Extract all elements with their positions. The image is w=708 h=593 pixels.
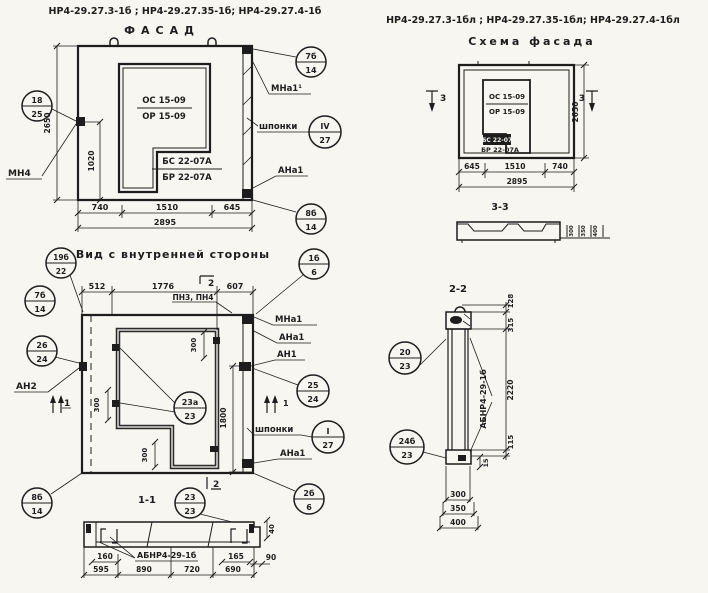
lifting-loops (110, 38, 216, 46)
section-2-2-title: 2-2 (449, 284, 467, 295)
facade-dim-sill: 1020 (87, 151, 96, 172)
inner-callout-25-24: 25 24 (297, 375, 329, 407)
callout-bot: 14 (305, 66, 317, 75)
facade-label-shponki: шпонки (259, 122, 297, 132)
scheme-block-mark-bot: БР 22-07А (481, 146, 519, 154)
scheme-block-mark-top: БС 22-07 (482, 137, 512, 144)
callout-top: 25 (307, 381, 319, 390)
callout-top: 26 (36, 341, 48, 350)
drawing-sheet: НР4-29.27.3-1б ; НР4-29.27.35-1б; НР4-29… (0, 0, 708, 593)
callout-bot: 14 (31, 507, 43, 516)
s11-dim-595: 595 (93, 565, 109, 574)
callout-bot: 14 (305, 223, 317, 232)
s11-callout-23-23: 23 23 (175, 488, 232, 522)
callout-top: 24б (399, 436, 416, 446)
facade-callout-7b-14: 7б 14 (296, 47, 326, 77)
inner-dim-300-c: 300 (190, 338, 198, 353)
callout-top: IV (320, 122, 330, 131)
facade-dim-645: 645 (224, 203, 241, 212)
callout-top: 19б (53, 253, 69, 262)
scheme-view: ОС 15-09 ОР 15-09 БС 22-07 БР 22-07А 3 3… (426, 61, 610, 243)
inner-mark1-right: 1 (283, 399, 289, 408)
inner-callout-2b-6: 2б 6 (294, 484, 324, 514)
callout-top: 7б (305, 51, 317, 61)
scheme-window-mark-top: ОС 15-09 (489, 93, 525, 101)
callout-top: 23 (184, 493, 195, 502)
title-facade: ФАСАД (124, 24, 200, 37)
s22-dim-350: 350 (450, 504, 466, 513)
titles: НР4-29.27.3-1б ; НР4-29.27.35-1б; НР4-29… (49, 6, 680, 48)
section-2-2: 2-2 АБНР4-29-1б 20 23 24б 23 128 315 222… (389, 284, 515, 531)
callout-bot: 25 (31, 110, 43, 119)
callout-top: I (327, 427, 330, 436)
s22-dim-115: 115 (507, 435, 515, 450)
section-1-1: 1-1 23 23 АБНР4-29-1б 160 165 90 40 595 … (81, 488, 276, 578)
inner-label-pn: ПН3, ПН4 (172, 293, 213, 302)
drawing-canvas: НР4-29.27.3-1б ; НР4-29.27.35-1б; НР4-29… (0, 0, 708, 593)
inner-dim-1800: 1800 (219, 408, 228, 429)
scheme-dim-645: 645 (464, 162, 480, 171)
facade-label-mna1: МНа1¹ (271, 84, 302, 94)
facade-dim-1510: 1510 (156, 203, 179, 212)
callout-bot: 23 (401, 451, 412, 460)
scheme-dim-height: 2650 (571, 102, 580, 123)
callout-bot: 24 (307, 395, 319, 404)
facade-window-mark-bot: ОР 15-09 (142, 112, 186, 122)
s22-dim-128: 128 (507, 294, 515, 309)
facade-callout-18-25: 18 25 (22, 91, 52, 121)
s22-callout-24b-23: 24б 23 (390, 430, 446, 464)
inner-mark1-left: 1 (64, 399, 70, 409)
inner-dim-607: 607 (227, 282, 244, 291)
callout-bot: 27 (319, 136, 330, 145)
facade-block-mark-bot: БР 22-07А (162, 173, 212, 183)
title-right-marks: НР4-29.27.3-1бл ; НР4-29.27.35-1бл; НР4-… (386, 15, 680, 26)
inner-label-an2: АН2 (16, 382, 37, 392)
callout-top: 2б (303, 488, 315, 498)
s11-dim-40: 40 (268, 524, 276, 534)
s11-dim-90: 90 (266, 553, 276, 562)
callout-bot: 27 (322, 441, 333, 450)
inner-callout-7b-14: 7б 14 (25, 286, 55, 316)
s11-dim-160: 160 (97, 552, 113, 561)
callout-top: 23а (182, 398, 199, 407)
s11-dim-890: 890 (136, 565, 152, 574)
facade-callout-shponki: IV 27 (309, 116, 341, 148)
inner-callout-8b-14: 8б 14 (22, 488, 52, 518)
inner-label-an1: АН1 (277, 350, 297, 360)
section-3-3-profile (457, 222, 560, 240)
callout-top: 18 (31, 96, 43, 105)
inner-callout-19b-22: 19б 22 (46, 248, 76, 278)
callout-top: 8б (31, 492, 43, 502)
callout-bot: 23 (184, 507, 195, 516)
section-3-3-title: 3-3 (491, 202, 508, 213)
title-scheme: Схема фасада (468, 35, 595, 48)
scheme-dim-740: 740 (552, 162, 568, 171)
callout-top: 7б (34, 290, 46, 300)
s11-profile (84, 522, 260, 547)
s11-dim-690: 690 (225, 565, 241, 574)
scheme-mark3-left: 3 (440, 94, 446, 104)
s11-dim-165: 165 (228, 552, 244, 561)
inner-label-mna1: МНа1 (275, 315, 302, 325)
s22-dim-300: 300 (450, 490, 466, 499)
facade-block-mark-top: БС 22-07А (162, 157, 212, 167)
inner-callout-26-24: 26 24 (27, 336, 57, 366)
facade-dim-total: 2895 (154, 218, 177, 227)
callout-bot: 14 (34, 305, 46, 314)
s11-element-label: АБНР4-29-1б (137, 550, 197, 560)
scheme-dim-total: 2895 (507, 177, 528, 186)
inner-callout-shponki: I 27 (312, 421, 344, 453)
callout-bot: 6 (306, 503, 312, 512)
callout-bot: 23 (184, 412, 195, 421)
s22-callout-20-23: 20 23 (389, 339, 446, 374)
facade-label-ana1: АНа1 (278, 166, 303, 176)
inner-callout-23a-23: 23а 23 (120, 348, 206, 424)
facade-callout-8b-14: 8б 14 (296, 204, 326, 234)
inner-label-shponki: шпонки (255, 425, 293, 435)
inner-dim-1776: 1776 (152, 282, 175, 291)
s22-dim-315: 315 (507, 318, 515, 333)
s22-dim-2220: 2220 (506, 380, 515, 401)
s33-dim-b: 350 (581, 225, 587, 237)
scheme-dim-1510: 1510 (505, 162, 526, 171)
inner-view: Вид с внутренней стороны 512 1776 607 2 … (14, 248, 344, 518)
inner-dim-300-b: 300 (141, 448, 149, 463)
callout-top: 8б (305, 208, 317, 218)
inner-mark2-top: 2 (208, 279, 214, 289)
callout-bot: 24 (36, 355, 48, 364)
inner-title: Вид с внутренней стороны (76, 248, 270, 261)
facade-dim-740: 740 (92, 203, 109, 212)
s33-dim-a: 300 (569, 225, 575, 237)
inner-dim-512: 512 (89, 282, 106, 291)
facade-window-mark-top: ОС 15-09 (142, 96, 186, 106)
s22-element-label: АБНР4-29-1б (478, 369, 488, 429)
s22-dim-15: 15 (482, 458, 490, 468)
title-left-marks: НР4-29.27.3-1б ; НР4-29.27.35-1б; НР4-29… (49, 6, 322, 17)
facade-label-mn4: МН4 (8, 169, 31, 179)
inner-label-ana1-bot: АНа1 (280, 449, 305, 459)
callout-top: 20 (399, 348, 411, 357)
inner-dim-300-a: 300 (93, 398, 101, 413)
s33-dim-c: 400 (593, 225, 599, 237)
s22-dim-400: 400 (450, 518, 466, 527)
facade-view: ОС 15-09 ОР 15-09 БС 22-07А БР 22-07А 26… (6, 38, 341, 234)
section-1-1-title: 1-1 (138, 495, 156, 506)
callout-bot: 23 (399, 362, 410, 371)
s11-dim-720: 720 (184, 565, 200, 574)
callout-bot: 22 (56, 267, 66, 276)
inner-mark2-bottom: 2 (213, 480, 219, 490)
callout-top: 1б (308, 253, 320, 263)
inner-label-ana1-top: АНа1 (279, 333, 304, 343)
callout-bot: 6 (311, 268, 317, 277)
scheme-window-mark-bot: ОР 15-09 (489, 108, 525, 116)
